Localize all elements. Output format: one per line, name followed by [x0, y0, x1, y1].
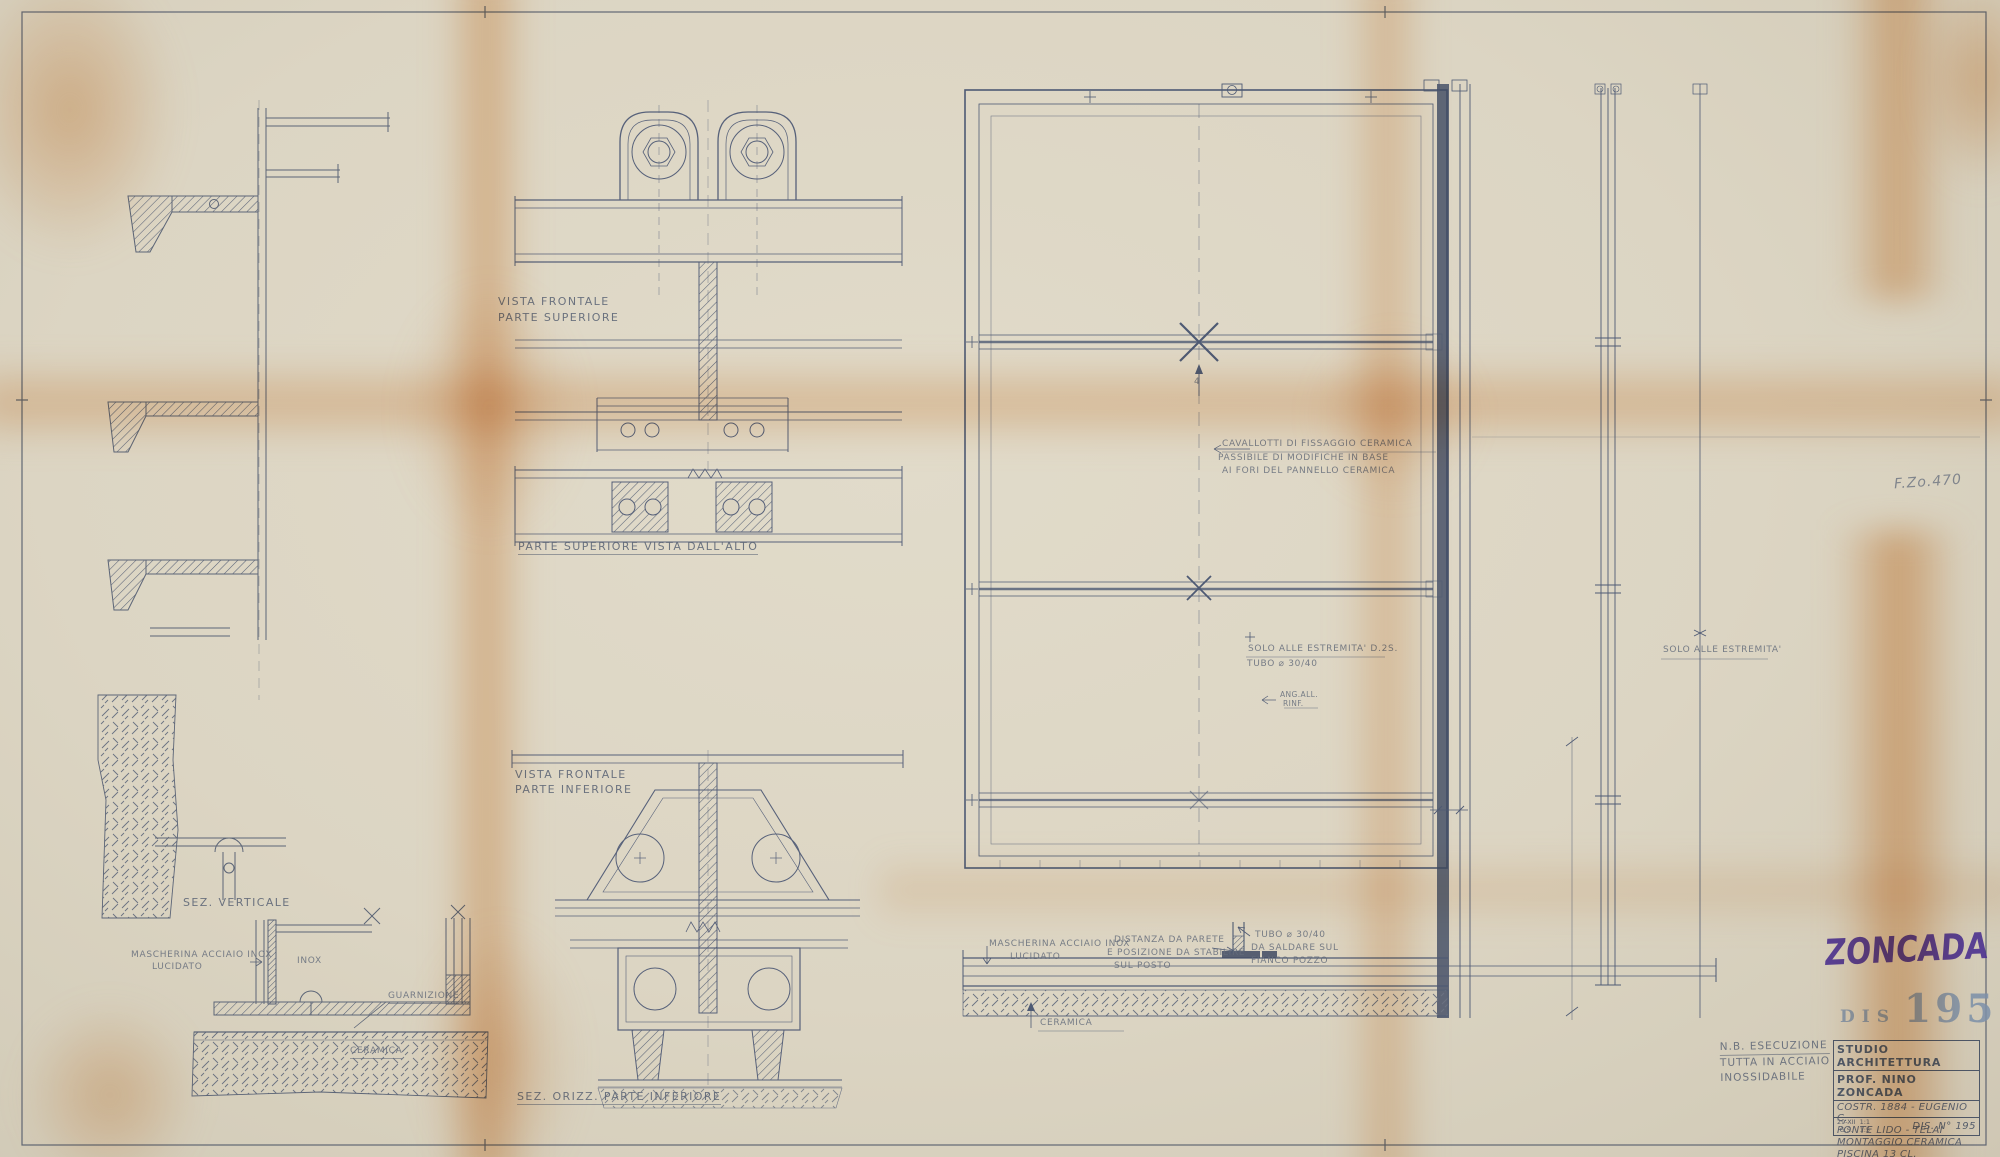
nb-note-line3: INOSSIDABILE [1720, 1069, 1830, 1086]
dis-stamp-label: DIS [1840, 1007, 1896, 1027]
nb-note: N.B. ESECUZIONE TUTTA IN ACCIAIO INOSSID… [1720, 1038, 1831, 1087]
label-distanza-3: SUL POSTO [1114, 962, 1171, 971]
label-solo-estremita-d2s: SOLO ALLE ESTREMITA' D.2S. [1248, 645, 1398, 654]
title-block-job4: PISCINA 13 CL. [1834, 1148, 1979, 1157]
label-vista-frontale-superiore-2: PARTE SUPERIORE [498, 312, 619, 323]
label-ceramica-left: CERAMICA [350, 1047, 402, 1059]
title-block-prof: PROF. NINO ZONCADA [1834, 1071, 1979, 1101]
nb-note-line1: N.B. ESECUZIONE [1720, 1038, 1830, 1056]
title-block-footer: 29-XII G.S. 1:1 1:5 DIS. N° 195 [1834, 1117, 1979, 1135]
label-fissaggio-3: AI FORI DEL PANNELLO CERAMICA [1222, 467, 1395, 476]
nb-note-line2: TUTTA IN ACCIAIO [1720, 1054, 1830, 1071]
label-distanza-2: E POSIZIONE DA STABILIRE [1107, 949, 1245, 958]
title-block-disno: DIS. N° 195 [1912, 1121, 1976, 1132]
label-ceramica-sill: CERAMICA [1040, 1019, 1092, 1028]
dis-stamp: DIS 195 [1840, 986, 1997, 1032]
title-block: STUDIO ARCHITETTURA PROF. NINO ZONCADA C… [1833, 1040, 1980, 1136]
label-tubo-saldare-1: TUBO ⌀ 30/40 [1255, 931, 1326, 940]
label-marker-4: 4 [1194, 378, 1200, 387]
label-ang-all: ANG.ALL. [1280, 691, 1318, 699]
label-fissaggio-2: PASSIBILE DI MODIFICHE IN BASE [1218, 454, 1389, 463]
label-sill-mascherina-2: LUCIDATO [1010, 953, 1061, 962]
label-sez-verticale: SEZ. VERTICALE [183, 897, 291, 908]
label-vista-frontale-inferiore-1: VISTA FRONTALE [515, 769, 627, 780]
label-sez-orizz-parte-inferiore: SEZ. ORIZZ. PARTE INFERIORE [517, 1091, 721, 1105]
label-fissaggio-1: CAVALLOTTI DI FISSAGGIO CERAMICA [1222, 440, 1412, 449]
title-block-job3: MONTAGGIO CERAMICA [1834, 1136, 1979, 1148]
dis-stamp-number: 195 [1904, 986, 1997, 1032]
label-guarnizione: GUARNIZIONE [388, 992, 459, 1004]
label-parte-superiore-vista-alto: PARTE SUPERIORE VISTA DALL'ALTO [518, 541, 758, 555]
title-block-date: 29-XII G.S. [1837, 1119, 1856, 1133]
label-solo-estremita-right: SOLO ALLE ESTREMITA' [1663, 646, 1782, 655]
label-tubo-3040: TUBO ⌀ 30/40 [1247, 660, 1318, 669]
reference-code: F.Zo.470 [1894, 472, 1963, 493]
label-distanza-1: DISTANZA DA PARETE [1114, 936, 1225, 945]
drawing-sheet: VISTA FRONTALE PARTE SUPERIORE PARTE SUP… [0, 0, 2000, 1157]
label-mascherina-inox-2: LUCIDATO [152, 963, 203, 972]
label-tubo-saldare-3: FIANCO POZZO [1251, 957, 1328, 966]
title-block-studio: STUDIO ARCHITETTURA [1834, 1041, 1979, 1071]
label-rinf: RINF. [1283, 700, 1304, 708]
label-tubo-saldare-2: DA SALDARE SUL [1251, 944, 1339, 953]
label-mascherina-inox-1: MASCHERINA ACCIAIO INOX [131, 951, 272, 960]
title-block-scale: 1:1 1:5 [1860, 1119, 1870, 1133]
label-inox: INOX [297, 957, 322, 966]
label-vista-frontale-inferiore-2: PARTE INFERIORE [515, 784, 632, 795]
labels-layer: VISTA FRONTALE PARTE SUPERIORE PARTE SUP… [0, 0, 2000, 1157]
label-vista-frontale-superiore-1: VISTA FRONTALE [498, 296, 610, 307]
zoncada-logo: ZONCADA [1823, 926, 1990, 974]
